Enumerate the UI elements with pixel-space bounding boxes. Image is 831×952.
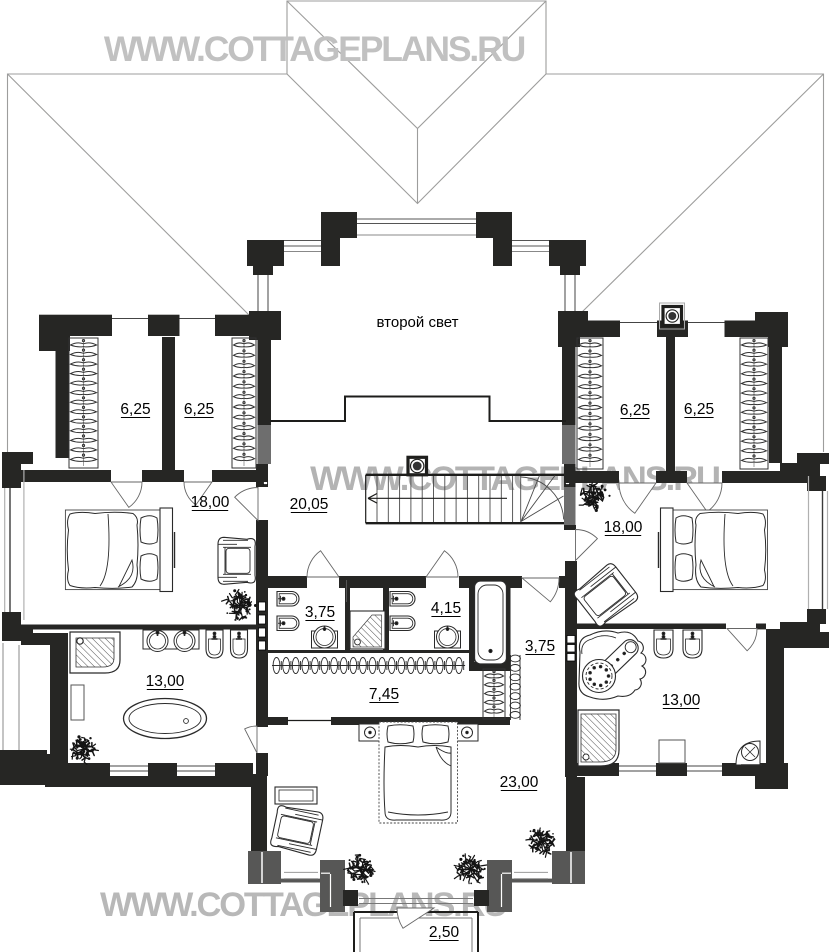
svg-text:13,00: 13,00 — [146, 673, 185, 690]
svg-text:6,25: 6,25 — [684, 401, 714, 418]
svg-text:23,00: 23,00 — [500, 774, 539, 791]
svg-text:4,15: 4,15 — [431, 600, 461, 617]
svg-text:WWW.COTTAGEPLANS.RU: WWW.COTTAGEPLANS.RU — [104, 29, 525, 69]
svg-text:7,45: 7,45 — [369, 686, 399, 703]
svg-text:13,00: 13,00 — [662, 692, 701, 709]
svg-text:20,05: 20,05 — [290, 496, 329, 513]
svg-text:3,75: 3,75 — [305, 604, 335, 621]
svg-text:2,50: 2,50 — [429, 924, 460, 941]
svg-text:второй свет: второй свет — [377, 314, 459, 331]
svg-text:6,25: 6,25 — [620, 402, 650, 419]
svg-text:6,25: 6,25 — [184, 401, 214, 418]
svg-text:6,25: 6,25 — [120, 401, 150, 418]
svg-text:18,00: 18,00 — [191, 494, 230, 511]
svg-text:3,75: 3,75 — [525, 638, 555, 655]
svg-text:18,00: 18,00 — [604, 519, 643, 536]
